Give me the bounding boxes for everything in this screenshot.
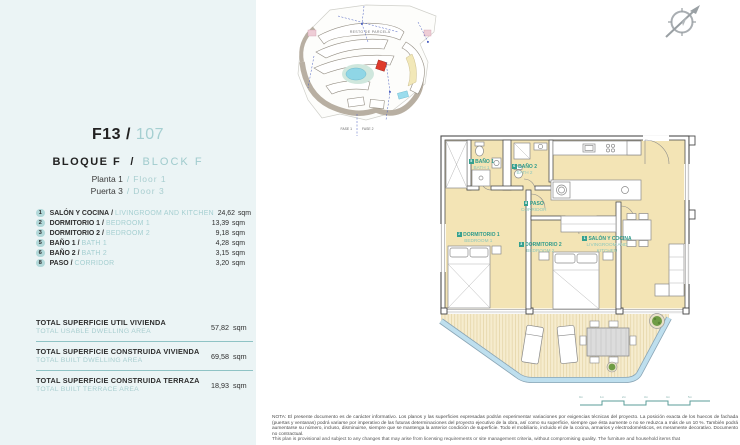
- door-label-es: Puerta 3: [51, 186, 123, 197]
- toilet-tank: [475, 142, 484, 146]
- room-row-bath2: 6 BAÑO 2 / BATH 2 3,15 sqm: [36, 248, 252, 258]
- floor-line: Planta 1 / Floor 1: [0, 174, 256, 185]
- plan-label-bath1: 5BAÑO 1 BATH 1: [469, 159, 494, 171]
- pillow: [470, 248, 488, 257]
- svg-text:2m: 2m: [622, 395, 627, 399]
- room-row-bedroom2: 3 DORMITORIO 2 / BEDROOM 2 9,18 sqm: [36, 228, 252, 238]
- info-panel: F13 / 107 BLOQUE F / BLOCK F Planta 1 / …: [0, 0, 256, 445]
- pillow: [450, 248, 468, 257]
- sun-lounger: [557, 325, 578, 364]
- room-sep: /: [78, 250, 80, 257]
- floor-plan: 5BAÑO 1 BATH 1 6BAÑO 2 BATH 2 8PASO CORR…: [435, 124, 697, 416]
- room-row-corridor: 8 PASO / CORRIDOR 3,20 sqm: [36, 258, 252, 268]
- floorplan-document: F13 / 107 BLOQUE F / BLOCK F Planta 1 / …: [0, 0, 740, 445]
- building-block: [370, 99, 385, 108]
- scale-bar-ticks: 0m 1m 2m 3m 4m 5m: [579, 395, 693, 399]
- plan-badge: 3: [519, 242, 524, 247]
- room-badge: 5: [36, 239, 45, 248]
- pillow: [555, 254, 575, 263]
- room-row-salon: 1 SALÓN Y COCINA / LIVINGROOM AND KITCHE…: [36, 208, 252, 218]
- total-built-terrace: TOTAL SUPERFICIE CONSTRUIDA TERRAZA TOTA…: [36, 370, 253, 399]
- door-label-en: Door 3: [133, 186, 205, 197]
- unit-number: 107: [136, 126, 164, 143]
- block-slash: /: [130, 156, 133, 168]
- scale-bar: 0m 1m 2m 3m 4m 5m: [576, 393, 716, 410]
- total-label-es: TOTAL SUPERFICIE UTIL VIVIENDA: [36, 318, 166, 327]
- total-label-es: TOTAL SUPERFICIE CONSTRUIDA VIVIENDA: [36, 347, 199, 356]
- total-label-en: TOTAL USABLE DWELLING AREA: [36, 327, 166, 336]
- room-row-bath1: 5 BAÑO 1 / BATH 1 4,28 sqm: [36, 238, 252, 248]
- washing-machine: [553, 182, 570, 198]
- room-name-en: BEDROOM 2: [106, 230, 150, 237]
- room-sep: /: [78, 240, 80, 247]
- total-unit: sqm: [229, 323, 253, 332]
- total-value: 57,82: [201, 323, 229, 332]
- room-name-es: BAÑO 2: [50, 250, 76, 257]
- room-name-es: SALÓN Y COCINA: [50, 210, 109, 217]
- floor-slash: /: [127, 174, 129, 185]
- room-name-es: DORMITORIO 1: [50, 220, 100, 227]
- armchair: [655, 284, 669, 296]
- room-unit: sqm: [229, 250, 252, 257]
- terrace-dining-table: [587, 328, 629, 356]
- room-sep: /: [71, 260, 73, 267]
- site-plan-drawing: RESTO DE PARCELA FASE 1 FASE 2: [278, 2, 464, 140]
- block-label-en: BLOCK F: [142, 156, 203, 168]
- total-label-en: TOTAL BUILT DWELLING AREA: [36, 356, 199, 365]
- plan-badge: 2: [457, 232, 462, 237]
- svg-text:1m: 1m: [600, 395, 605, 399]
- room-badge: 3: [36, 229, 45, 238]
- room-sep: /: [102, 220, 104, 227]
- svg-text:3m: 3m: [644, 395, 649, 399]
- room-badge: 6: [36, 249, 45, 258]
- room-name-en: BEDROOM 1: [106, 220, 150, 227]
- plan-label-bedroom1: 2DORMITORIO 1 BEDROOM 1: [457, 232, 500, 244]
- total-label-en: TOTAL BUILT TERRACE AREA: [36, 385, 200, 394]
- nightstand: [492, 246, 501, 254]
- plan-label-livingroom: 1SALÓN Y COCINA LIVINGROOM AND KITCHEN: [578, 236, 636, 254]
- door-line: Puerta 3 / Door 3: [0, 186, 256, 197]
- resto-de-parcela-label: RESTO DE PARCELA: [350, 30, 391, 34]
- room-name-en: BATH 2: [82, 250, 107, 257]
- plan-label-corridor: 8PASO CORRIDOR: [521, 201, 547, 213]
- room-name-en: CORRIDOR: [75, 260, 115, 267]
- toilet: [476, 146, 484, 156]
- room-area: 24,62: [214, 210, 235, 217]
- room-unit: sqm: [229, 260, 252, 267]
- room-area: 3,20: [199, 260, 229, 267]
- pillow: [577, 254, 597, 263]
- party-wall-stub: [689, 210, 695, 219]
- totals-block: TOTAL SUPERFICIE UTIL VIVIENDA TOTAL USA…: [36, 313, 253, 399]
- svg-text:5m: 5m: [688, 395, 693, 399]
- floor-label-es: Planta 1: [51, 174, 123, 185]
- total-unit: sqm: [229, 381, 253, 390]
- room-unit: sqm: [229, 230, 252, 237]
- room-unit: sqm: [229, 240, 252, 247]
- plan-label-bath2: 6BAÑO 2 BATH 2: [512, 164, 537, 176]
- plan-badge: 5: [469, 159, 474, 164]
- fase2-label: FASE 2: [362, 127, 374, 131]
- room-name-en: BATH 1: [82, 240, 107, 247]
- disclaimer-note: NOTA: El presente documento es de caráct…: [272, 415, 738, 443]
- room-area: 4,28: [199, 240, 229, 247]
- total-usable-area: TOTAL SUPERFICIE UTIL VIVIENDA TOTAL USA…: [36, 313, 253, 341]
- room-name-es: BAÑO 1: [50, 240, 76, 247]
- plan-badge: 8: [524, 201, 529, 206]
- block-line: BLOQUE F / BLOCK F: [0, 156, 256, 168]
- floor-label-en: Floor 1: [133, 174, 205, 185]
- room-area: 9,18: [199, 230, 229, 237]
- plan-label-bedroom2: 3DORMITORIO 2 BEDROOM 2: [519, 242, 562, 254]
- room-name-es: PASO: [50, 260, 69, 267]
- room-badge: 8: [36, 259, 45, 268]
- total-unit: sqm: [229, 352, 253, 361]
- room-name-es: DORMITORIO 2: [50, 230, 100, 237]
- room-badge: 1: [36, 209, 45, 218]
- room-unit: sqm: [229, 220, 252, 227]
- room-unit: sqm: [235, 210, 252, 217]
- unit-header: F13 / 107 BLOQUE F / BLOCK F Planta 1 / …: [0, 126, 256, 197]
- room-sep: /: [102, 230, 104, 237]
- pink-block: [308, 30, 316, 36]
- site-plan: RESTO DE PARCELA FASE 1 FASE 2: [278, 2, 464, 140]
- room-sep: /: [111, 210, 113, 217]
- block-label-es: BLOQUE F: [52, 156, 121, 168]
- total-label-es: TOTAL SUPERFICIE CONSTRUIDA TERRAZA: [36, 376, 200, 385]
- fase1-label: FASE 1: [341, 127, 353, 131]
- total-value: 69,58: [201, 352, 229, 361]
- pink-block: [424, 30, 431, 36]
- room-row-bedroom1: 2 DORMITORIO 1 / BEDROOM 1 13,39 sqm: [36, 218, 252, 228]
- room-badge: 2: [36, 219, 45, 228]
- pool: [346, 68, 366, 80]
- door-slash: /: [127, 186, 129, 197]
- svg-text:4m: 4m: [666, 395, 671, 399]
- compass-icon: [656, 0, 708, 44]
- total-value: 18,93: [201, 381, 229, 390]
- room-list: 1 SALÓN Y COCINA / LIVINGROOM AND KITCHE…: [36, 208, 252, 268]
- party-wall-stub: [689, 136, 695, 145]
- plan-badge: 1: [582, 236, 587, 241]
- room-area: 3,15: [199, 250, 229, 257]
- room-area: 13,39: [199, 220, 229, 227]
- disclaimer-en: This plan is provisional and subject to …: [272, 437, 738, 443]
- scale-bar-line: [580, 401, 710, 405]
- room-name-en: LIVINGROOM AND KITCHEN: [115, 210, 214, 217]
- plan-badge: 6: [512, 164, 517, 169]
- unit-code-line: F13 / 107: [0, 126, 256, 144]
- fridge: [627, 141, 641, 155]
- svg-text:0m: 0m: [579, 395, 584, 399]
- unit-code: F13 /: [92, 126, 131, 143]
- disclaimer-es: NOTA: El presente documento es de caráct…: [272, 415, 738, 437]
- total-built-dwelling: TOTAL SUPERFICIE CONSTRUIDA VIVIENDA TOT…: [36, 341, 253, 370]
- island-sink: [622, 187, 629, 194]
